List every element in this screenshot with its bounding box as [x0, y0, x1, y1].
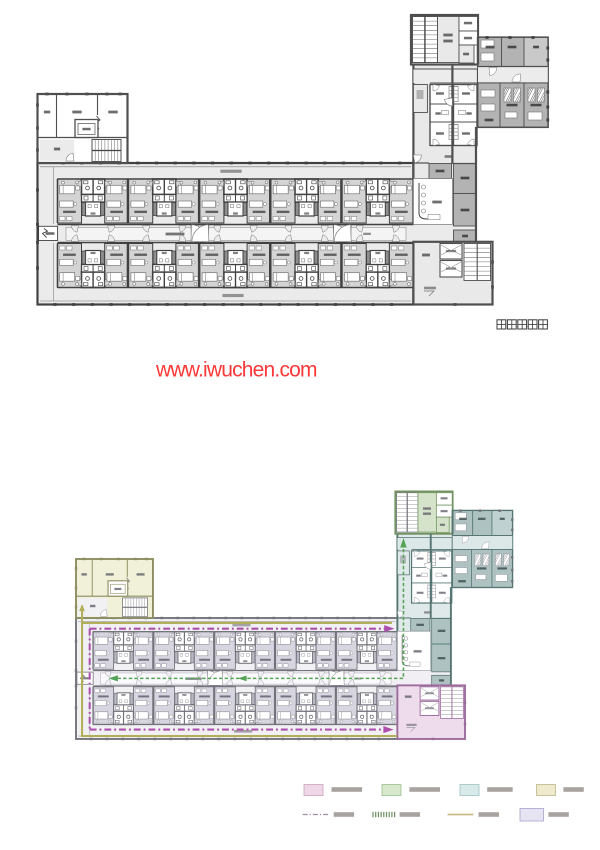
- svg-text:www.iwuchen.com: www.iwuchen.com: [155, 359, 317, 382]
